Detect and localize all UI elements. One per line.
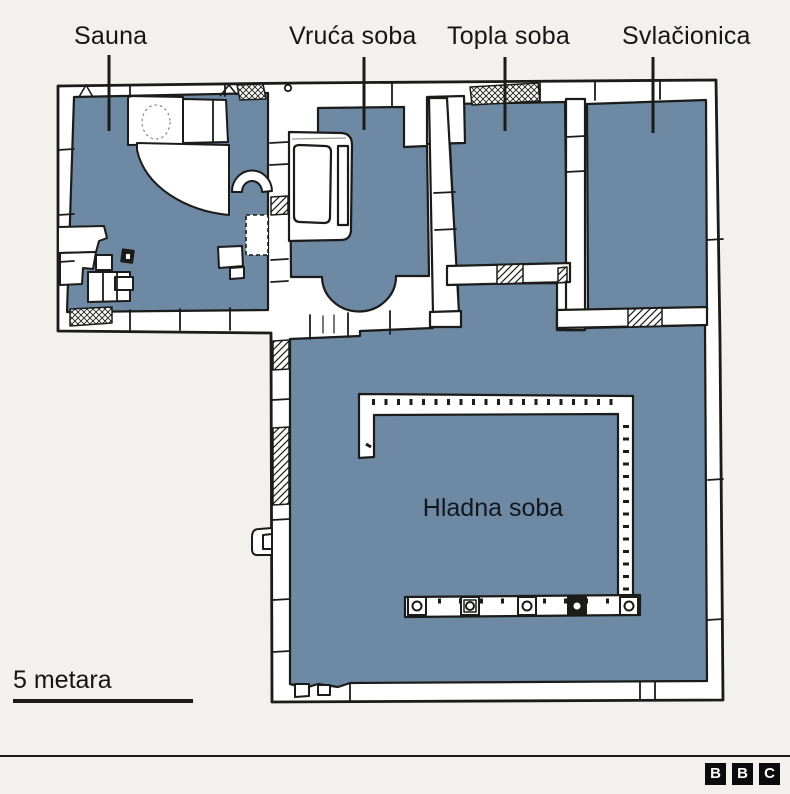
label-topla-soba: Topla soba: [447, 22, 570, 51]
label-hladna-soba: Hladna soba: [383, 494, 603, 523]
bbc-logo: B B C: [705, 763, 780, 785]
infographic: Sauna Vruća soba Topla soba Svlačionica …: [0, 0, 790, 794]
scale-bar-line: [13, 699, 193, 703]
label-sauna: Sauna: [74, 22, 147, 51]
room-topla-soba: [448, 102, 567, 268]
floor-plan: [0, 0, 790, 794]
bbc-logo-letter: B: [705, 763, 726, 785]
wall-post: [285, 85, 291, 91]
bbc-logo-letter: C: [759, 763, 780, 785]
room-hladna-soba: [290, 283, 707, 688]
hot-bath: [289, 132, 352, 241]
label-vruca-soba: Vruća soba: [289, 22, 417, 51]
scale-bar-label: 5 metara: [13, 666, 112, 695]
room-svlacionica: [587, 100, 707, 311]
sauna-alcove: [246, 215, 268, 255]
bbc-logo-letter: B: [732, 763, 753, 785]
label-svlacionica: Svlačionica: [622, 22, 751, 51]
footer-divider: [0, 755, 790, 757]
sauna-tub-room: [128, 96, 183, 145]
